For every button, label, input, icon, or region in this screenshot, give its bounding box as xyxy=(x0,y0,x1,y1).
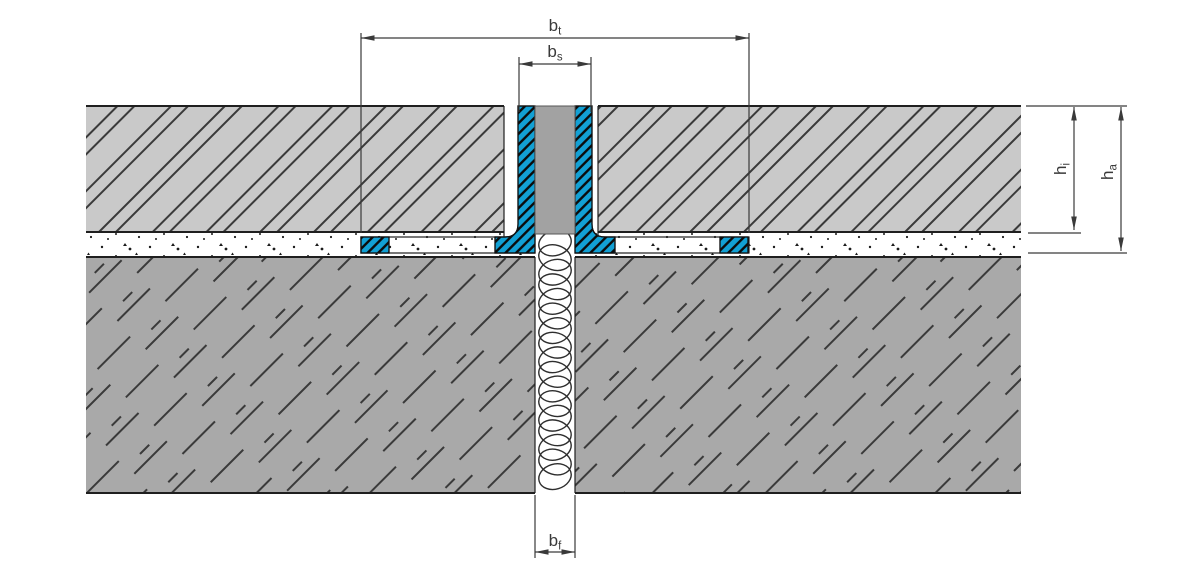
screed-left-hatch xyxy=(86,106,504,232)
anchor-left-hatch xyxy=(361,237,389,253)
hi-label: hi xyxy=(1051,163,1073,175)
concrete-left-hatch xyxy=(86,257,535,493)
bf-label: bf xyxy=(549,531,562,553)
profile-anchor-right xyxy=(720,237,748,253)
diagram-canvas: bt bs hi ha bf xyxy=(0,0,1191,580)
concrete-right-hatch xyxy=(575,257,1021,493)
bs-label: bs xyxy=(547,42,562,64)
expansion-joint-diagram: bt bs hi ha bf xyxy=(0,0,1191,580)
profile-anchor-left xyxy=(361,237,389,253)
bt-label: bt xyxy=(549,16,562,38)
bs-extension-lines xyxy=(519,57,591,112)
screed-right-hatch xyxy=(598,106,1021,232)
ha-label: ha xyxy=(1098,163,1120,179)
anchor-right-hatch xyxy=(720,237,748,253)
sealing-insert xyxy=(535,106,575,234)
